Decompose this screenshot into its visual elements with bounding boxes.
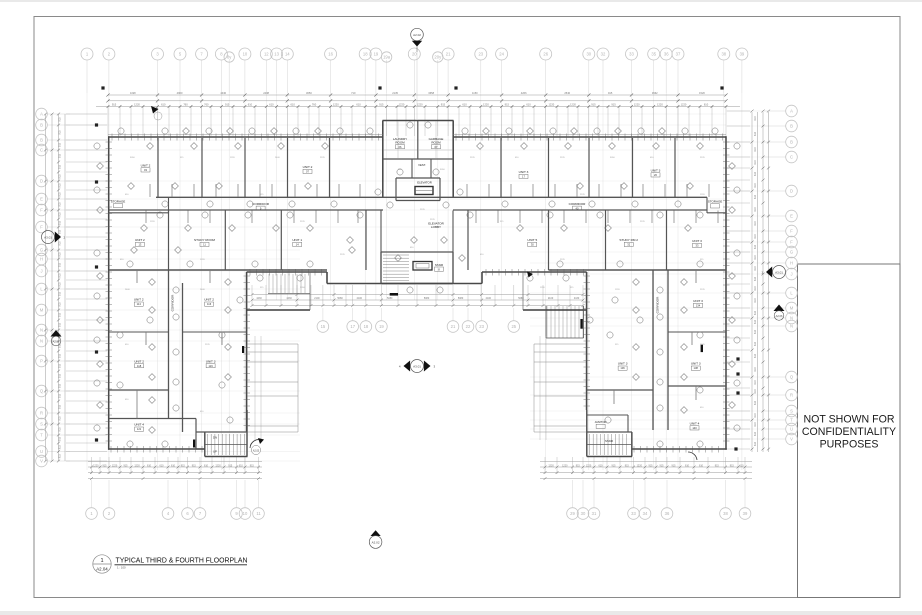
svg-text:1220: 1220 <box>483 103 489 107</box>
svg-text:915: 915 <box>59 153 62 158</box>
svg-text:UNIT 3: UNIT 3 <box>692 239 702 243</box>
svg-text:610: 610 <box>269 103 274 107</box>
svg-text:23: 23 <box>479 324 484 329</box>
svg-text:2100: 2100 <box>314 297 320 300</box>
svg-text:915: 915 <box>59 183 62 188</box>
svg-text:1220: 1220 <box>681 103 687 107</box>
svg-text:610: 610 <box>754 389 757 394</box>
svg-text:J: J <box>40 269 42 274</box>
svg-text:610: 610 <box>754 422 757 427</box>
svg-text:A: A <box>790 109 793 114</box>
svg-text:610: 610 <box>754 341 757 346</box>
svg-text:F: F <box>790 229 793 234</box>
svg-text:1520: 1520 <box>699 91 705 95</box>
svg-text:915: 915 <box>228 465 233 468</box>
svg-text:30: 30 <box>581 511 586 516</box>
svg-text:760: 760 <box>204 103 209 107</box>
svg-text:J: J <box>790 272 792 277</box>
svg-text:2100: 2100 <box>548 297 554 300</box>
svg-text:915: 915 <box>59 291 62 296</box>
svg-text:H: H <box>790 261 793 266</box>
svg-text:610: 610 <box>204 465 209 468</box>
svg-text:1220: 1220 <box>112 465 118 468</box>
svg-text:610: 610 <box>754 413 757 418</box>
svg-text:UNIT 3: UNIT 3 <box>519 170 529 174</box>
svg-text:5080: 5080 <box>424 297 430 300</box>
svg-text:UNIT 2: UNIT 2 <box>303 165 313 169</box>
svg-text:1220: 1220 <box>562 465 568 468</box>
svg-text:18: 18 <box>364 324 369 329</box>
svg-text:R: R <box>40 411 43 416</box>
svg-text:610: 610 <box>754 286 757 291</box>
svg-text:G: G <box>40 248 43 253</box>
svg-text:140: 140 <box>692 426 697 430</box>
svg-text:915: 915 <box>59 383 62 388</box>
svg-text:F: F <box>790 240 793 245</box>
svg-text:915: 915 <box>591 103 596 107</box>
svg-text:610: 610 <box>754 367 757 372</box>
svg-text:38: 38 <box>723 511 728 516</box>
svg-text:134: 134 <box>696 304 701 308</box>
svg-text:39: 39 <box>740 52 745 57</box>
svg-text:136: 136 <box>620 366 625 370</box>
svg-text:N: N <box>40 328 43 333</box>
svg-text:610: 610 <box>754 298 757 303</box>
svg-text:915: 915 <box>649 465 654 468</box>
svg-text:915: 915 <box>59 212 62 217</box>
svg-text:610: 610 <box>754 319 757 324</box>
svg-text:610: 610 <box>161 103 166 107</box>
svg-text:1220: 1220 <box>548 465 554 468</box>
svg-text:25: 25 <box>511 324 516 329</box>
svg-text:915: 915 <box>59 252 62 257</box>
svg-text:610: 610 <box>699 465 704 468</box>
svg-text:F: F <box>40 225 43 230</box>
svg-text:1 : 100: 1 : 100 <box>117 566 126 570</box>
svg-text:610: 610 <box>704 103 709 107</box>
svg-text:TYPICAL THIRD & FOURTH FLOORPL: TYPICAL THIRD & FOURTH FLOORPLAN <box>116 558 248 565</box>
svg-text:C: C <box>40 148 43 153</box>
svg-text:915: 915 <box>112 103 117 107</box>
svg-text:S: S <box>40 422 43 427</box>
svg-text:915: 915 <box>59 241 62 246</box>
svg-text:915: 915 <box>103 465 108 468</box>
svg-text:T: T <box>40 433 43 438</box>
svg-text:610: 610 <box>160 465 165 468</box>
svg-text:UNIT 3: UNIT 3 <box>691 362 701 366</box>
svg-text:33: 33 <box>629 52 634 57</box>
svg-text:1220: 1220 <box>93 465 99 468</box>
svg-text:1220: 1220 <box>657 103 663 107</box>
svg-text:915: 915 <box>730 465 735 468</box>
svg-text:610: 610 <box>526 103 531 107</box>
svg-text:STORAGE: STORAGE <box>111 199 126 203</box>
svg-text:CORRIDOR: CORRIDOR <box>170 294 174 312</box>
svg-text:610: 610 <box>754 183 757 188</box>
svg-text:P: P <box>40 359 43 364</box>
svg-text:915: 915 <box>124 465 129 468</box>
svg-text:30: 30 <box>586 52 591 57</box>
svg-text:1220: 1220 <box>586 465 592 468</box>
svg-text:15: 15 <box>321 324 326 329</box>
svg-text:915: 915 <box>660 465 665 468</box>
svg-text:1220: 1220 <box>333 103 339 107</box>
svg-text:610: 610 <box>171 465 176 468</box>
svg-text:UP: UP <box>213 450 217 454</box>
svg-text:UNIT 2: UNIT 2 <box>141 164 151 168</box>
svg-text:915: 915 <box>59 130 62 135</box>
svg-text:610: 610 <box>462 103 467 107</box>
svg-text:915: 915 <box>59 353 62 358</box>
svg-text:915: 915 <box>59 192 62 197</box>
svg-text:610: 610 <box>754 160 757 165</box>
svg-text:B: B <box>40 138 43 143</box>
svg-text:UNIT 3: UNIT 3 <box>618 362 628 366</box>
svg-text:2135: 2135 <box>392 91 398 95</box>
svg-text:N: N <box>790 316 793 321</box>
svg-text:1220: 1220 <box>548 103 554 107</box>
svg-text:STORAGE: STORAGE <box>708 200 723 204</box>
svg-text:915: 915 <box>59 363 62 368</box>
svg-text:A3.01: A3.01 <box>44 236 52 240</box>
svg-text:UNIT 1: UNIT 1 <box>292 238 302 242</box>
svg-text:39: 39 <box>743 511 748 516</box>
svg-text:U: U <box>790 427 793 432</box>
svg-text:915: 915 <box>59 202 62 207</box>
svg-text:1220: 1220 <box>637 465 643 468</box>
svg-text:4430: 4430 <box>256 297 262 300</box>
svg-text:V: V <box>790 437 793 442</box>
svg-text:VEST.: VEST. <box>418 163 426 167</box>
svg-text:915: 915 <box>59 302 62 307</box>
svg-text:610: 610 <box>754 147 757 152</box>
svg-text:2438: 2438 <box>263 91 269 95</box>
svg-text:118: 118 <box>137 364 142 368</box>
svg-text:UNIT 3: UNIT 3 <box>206 359 216 363</box>
svg-text:610: 610 <box>356 103 361 107</box>
svg-text:A: A <box>40 112 43 117</box>
svg-text:A2.04: A2.04 <box>96 567 108 572</box>
svg-text:ROOM: ROOM <box>431 140 441 144</box>
svg-text:C: C <box>790 155 793 160</box>
svg-text:10: 10 <box>243 511 248 516</box>
svg-text:610: 610 <box>754 221 757 226</box>
svg-text:610: 610 <box>754 441 757 446</box>
svg-text:915: 915 <box>250 465 255 468</box>
svg-text:915: 915 <box>505 103 510 107</box>
svg-text:610: 610 <box>754 310 757 315</box>
svg-text:610: 610 <box>147 465 152 468</box>
svg-text:A2.06: A2.06 <box>53 339 60 343</box>
svg-text:19: 19 <box>379 324 384 329</box>
svg-text:A3.01: A3.01 <box>775 271 783 275</box>
svg-text:F: F <box>40 208 43 213</box>
svg-text:STAIR: STAIR <box>605 439 613 443</box>
svg-text:PURPOSES: PURPOSES <box>820 439 879 451</box>
svg-text:915: 915 <box>192 465 197 468</box>
svg-text:E: E <box>790 214 793 219</box>
svg-text:610: 610 <box>754 266 757 271</box>
svg-text:11: 11 <box>256 511 261 516</box>
svg-text:915: 915 <box>715 465 720 468</box>
svg-text:915: 915 <box>59 220 62 225</box>
svg-text:4430: 4430 <box>574 297 580 300</box>
svg-text:13: 13 <box>274 52 279 57</box>
svg-text:5080: 5080 <box>458 297 464 300</box>
svg-text:D: D <box>40 179 43 184</box>
svg-text:A2.06: A2.06 <box>776 314 783 318</box>
svg-text:24: 24 <box>499 52 504 57</box>
svg-text:915: 915 <box>59 404 62 409</box>
svg-text:V: V <box>40 459 43 464</box>
svg-text:1220: 1220 <box>134 103 140 107</box>
svg-text:3962: 3962 <box>652 91 658 95</box>
svg-text:A2.05: A2.05 <box>253 449 260 452</box>
svg-text:121: 121 <box>137 427 142 431</box>
svg-text:38: 38 <box>721 52 726 57</box>
svg-text:2540: 2540 <box>564 91 570 95</box>
svg-text:915: 915 <box>59 142 62 147</box>
svg-text:915: 915 <box>59 174 62 179</box>
svg-text:610: 610 <box>248 103 253 107</box>
svg-text:915: 915 <box>612 465 617 468</box>
svg-text:915: 915 <box>611 103 616 107</box>
svg-text:915: 915 <box>59 445 62 450</box>
svg-text:UNIT 4: UNIT 4 <box>690 422 700 426</box>
svg-text:610: 610 <box>754 171 757 176</box>
svg-text:915: 915 <box>59 273 62 278</box>
svg-text:UNIT 5: UNIT 5 <box>527 238 537 242</box>
svg-text:915: 915 <box>608 91 613 95</box>
svg-text:915: 915 <box>59 454 62 459</box>
svg-text:STAIR: STAIR <box>435 263 443 267</box>
svg-text:610: 610 <box>239 465 244 468</box>
svg-text:610: 610 <box>754 380 757 385</box>
svg-text:1220: 1220 <box>634 103 640 107</box>
svg-text:610: 610 <box>754 116 757 121</box>
svg-text:915: 915 <box>59 117 62 122</box>
svg-text:610: 610 <box>740 465 745 468</box>
svg-text:760: 760 <box>183 103 188 107</box>
svg-text:32: 32 <box>601 52 606 57</box>
svg-text:610: 610 <box>754 131 757 136</box>
svg-text:915: 915 <box>181 465 186 468</box>
svg-text:LOBBY: LOBBY <box>431 225 441 229</box>
svg-text:610: 610 <box>754 400 757 405</box>
svg-text:2100: 2100 <box>357 297 363 300</box>
svg-text:G: G <box>790 250 793 255</box>
svg-text:E: E <box>40 197 43 202</box>
svg-text:610: 610 <box>754 244 757 249</box>
svg-text:610: 610 <box>754 234 757 239</box>
svg-text:3050: 3050 <box>306 91 312 95</box>
svg-text:21: 21 <box>446 52 451 57</box>
svg-text:T: T <box>790 418 793 423</box>
svg-text:10: 10 <box>243 52 248 57</box>
svg-text:A3.01: A3.01 <box>413 365 421 369</box>
svg-text:N: N <box>790 324 793 329</box>
svg-text:915: 915 <box>576 465 581 468</box>
svg-text:5080: 5080 <box>337 297 343 300</box>
svg-text:S: S <box>790 409 793 414</box>
svg-text:33: 33 <box>631 511 636 516</box>
svg-text:1220: 1220 <box>417 103 423 107</box>
svg-text:17: 17 <box>350 324 355 329</box>
svg-text:UNIT 2: UNIT 2 <box>134 359 144 363</box>
svg-text:1: 1 <box>100 558 103 564</box>
svg-text:4266: 4266 <box>521 91 527 95</box>
svg-text:12: 12 <box>264 52 269 57</box>
svg-text:138: 138 <box>694 366 699 370</box>
svg-text:915: 915 <box>59 322 62 327</box>
svg-text:114: 114 <box>137 302 142 306</box>
svg-text:610: 610 <box>754 207 757 212</box>
svg-text:20y: 20y <box>434 55 442 60</box>
svg-text:STUDY ROOM: STUDY ROOM <box>194 238 215 242</box>
svg-text:UNIT 2: UNIT 2 <box>135 238 145 242</box>
svg-text:1220: 1220 <box>399 103 405 107</box>
svg-text:915: 915 <box>59 436 62 441</box>
svg-text:760: 760 <box>312 103 317 107</box>
svg-text:31: 31 <box>592 511 597 516</box>
svg-text:610: 610 <box>754 194 757 199</box>
svg-text:915: 915 <box>59 312 62 317</box>
svg-text:610: 610 <box>754 329 757 334</box>
svg-text:UNIT 4: UNIT 4 <box>134 423 144 427</box>
svg-text:915: 915 <box>379 103 384 107</box>
svg-text:UNIT 3: UNIT 3 <box>693 299 703 303</box>
svg-text:23: 23 <box>478 52 483 57</box>
svg-text:H: H <box>40 257 43 262</box>
svg-text:610: 610 <box>599 465 604 468</box>
svg-text:4430: 4430 <box>220 91 226 95</box>
svg-text:4960: 4960 <box>177 91 183 95</box>
svg-text:STUDY RM 2: STUDY RM 2 <box>619 238 638 242</box>
svg-text:CONFIDENTIALITY: CONFIDENTIALITY <box>802 426 896 438</box>
svg-text:29: 29 <box>570 511 575 516</box>
svg-text:610: 610 <box>685 465 690 468</box>
svg-text:915: 915 <box>59 427 62 432</box>
svg-text:1220: 1220 <box>570 103 576 107</box>
svg-text:R: R <box>790 393 793 398</box>
svg-text:16: 16 <box>328 52 333 57</box>
svg-text:4430: 4430 <box>286 297 292 300</box>
svg-text:915: 915 <box>672 465 677 468</box>
svg-text:34: 34 <box>643 511 648 516</box>
svg-text:21: 21 <box>451 324 456 329</box>
svg-text:915: 915 <box>59 416 62 421</box>
svg-text:CORRIDOR: CORRIDOR <box>656 296 660 314</box>
svg-text:UNIT 2: UNIT 2 <box>204 298 214 302</box>
svg-text:610: 610 <box>754 353 757 358</box>
svg-text:ELEVATOR: ELEVATOR <box>417 181 431 185</box>
svg-text:N: N <box>40 339 43 344</box>
svg-text:NOT SHOWN FOR: NOT SHOWN FOR <box>803 414 894 426</box>
svg-text:DN: DN <box>213 436 217 440</box>
svg-text:610: 610 <box>290 103 295 107</box>
svg-text:M: M <box>790 306 794 311</box>
svg-text:915: 915 <box>59 164 62 169</box>
svg-text:CORRIDOR: CORRIDOR <box>252 202 270 206</box>
svg-text:915: 915 <box>625 465 630 468</box>
svg-text:37: 37 <box>676 52 681 57</box>
svg-text:1220: 1220 <box>215 465 221 468</box>
svg-text:1150: 1150 <box>472 91 478 95</box>
svg-text:3658: 3658 <box>428 91 434 95</box>
svg-text:UNIT 2: UNIT 2 <box>134 298 144 302</box>
svg-text:915: 915 <box>59 393 62 398</box>
svg-text:19a: 19a <box>383 55 391 60</box>
svg-text:915: 915 <box>441 103 446 107</box>
svg-text:20: 20 <box>412 52 417 57</box>
svg-text:610: 610 <box>754 255 757 260</box>
svg-text:A2.02: A2.02 <box>372 541 380 545</box>
svg-text:18: 18 <box>363 52 368 57</box>
svg-text:CORRIDOR: CORRIDOR <box>569 202 587 206</box>
svg-text:D: D <box>790 189 793 194</box>
svg-text:2100: 2100 <box>486 297 492 300</box>
svg-text:B: B <box>790 140 793 145</box>
svg-text:610: 610 <box>754 276 757 281</box>
svg-text:14: 14 <box>285 52 290 57</box>
svg-text:710: 710 <box>351 91 356 95</box>
svg-text:915: 915 <box>59 262 62 267</box>
svg-text:19: 19 <box>374 52 379 57</box>
svg-text:36: 36 <box>664 52 669 57</box>
svg-text:35: 35 <box>651 52 656 57</box>
svg-text:116: 116 <box>207 302 212 306</box>
svg-text:915: 915 <box>59 229 62 234</box>
svg-text:610: 610 <box>754 431 757 436</box>
svg-text:26: 26 <box>543 52 548 57</box>
svg-text:915: 915 <box>59 373 62 378</box>
svg-text:36: 36 <box>665 511 670 516</box>
svg-text:U: U <box>40 449 43 454</box>
svg-text:119: 119 <box>209 364 214 368</box>
svg-text:1198: 1198 <box>130 91 136 95</box>
svg-text:915: 915 <box>225 103 230 107</box>
svg-text:B: B <box>40 123 43 128</box>
svg-text:22: 22 <box>466 324 471 329</box>
svg-text:A2.02: A2.02 <box>413 33 421 37</box>
svg-text:UNIT 3: UNIT 3 <box>651 169 661 173</box>
svg-text:M: M <box>40 308 44 313</box>
svg-text:B: B <box>790 124 793 129</box>
svg-text:5080: 5080 <box>387 297 393 300</box>
svg-text:ROOM: ROOM <box>395 140 405 144</box>
svg-text:1220: 1220 <box>134 465 140 468</box>
svg-text:915: 915 <box>59 282 62 287</box>
